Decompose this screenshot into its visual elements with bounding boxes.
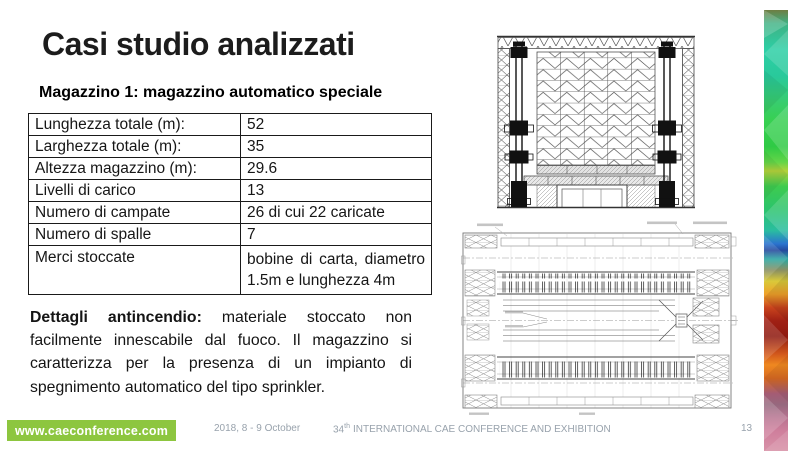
spec-label-cell: Lunghezza totale (m): [29,114,241,136]
conference-ordinal: th [344,423,350,430]
table-row: Merci stoccate bobine di carta, diametro… [29,246,432,295]
spec-label-cell: Altezza magazzino (m): [29,158,241,180]
spec-label-cell: Livelli di carico [29,180,241,202]
page-number: 13 [741,423,752,434]
warehouse-plan-drawing [461,220,738,419]
conference-number: 34 [333,424,344,435]
spec-label-cell: Numero di spalle [29,224,241,246]
footer-date: 2018, 8 - 9 October [214,423,300,434]
spec-value-cell: 29.6 [241,158,432,180]
conference-name: INTERNATIONAL CAE CONFERENCE AND EXHIBIT… [353,424,611,435]
table-row: Larghezza totale (m): 35 [29,136,432,158]
footer-conference-title: 34thINTERNATIONAL CAE CONFERENCE AND EXH… [333,423,611,435]
spec-label-cell: Numero di campate [29,202,241,224]
spec-value-cell: 7 [241,224,432,246]
warehouse-elevation-drawing [496,35,696,210]
table-row: Numero di campate 26 di cui 22 caricate [29,202,432,224]
table-row: Numero di spalle 7 [29,224,432,246]
spec-value-cell: 13 [241,180,432,202]
website-link[interactable]: www.caeconference.com [15,424,168,438]
color-strip-facets [764,10,788,451]
spec-label-cell: Merci stoccate [29,246,241,295]
table-row: Altezza magazzino (m): 29.6 [29,158,432,180]
spec-value-cell: bobine di carta, diametro 1.5m e lunghez… [241,246,432,295]
spec-label-cell: Larghezza totale (m): [29,136,241,158]
fire-details-label: Dettagli antincendio: [30,309,202,326]
spec-value-cell: 35 [241,136,432,158]
spec-value-cell: 52 [241,114,432,136]
page-title: Casi studio analizzati [42,26,355,63]
website-banner: www.caeconference.com [7,420,176,441]
table-row: Livelli di carico 13 [29,180,432,202]
warehouse-spec-table: Lunghezza totale (m): 52 Larghezza total… [28,113,432,295]
slide-subtitle: Magazzino 1: magazzino automatico specia… [39,84,382,102]
fire-details-paragraph: Dettagli antincendio: materiale stoccato… [30,306,412,399]
table-row: Lunghezza totale (m): 52 [29,114,432,136]
slide: Casi studio analizzati Magazzino 1: maga… [0,0,800,461]
spec-value-cell: 26 di cui 22 caricate [241,202,432,224]
decorative-color-strip [764,10,788,451]
